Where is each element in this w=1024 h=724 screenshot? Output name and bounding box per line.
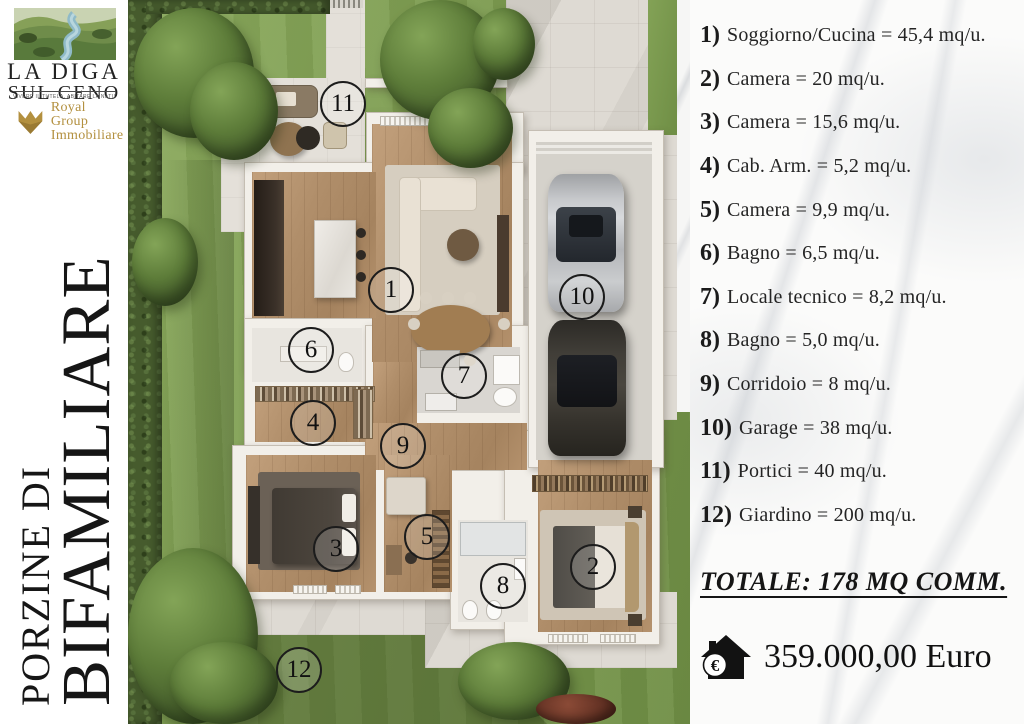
bedroom3-window-b bbox=[335, 585, 361, 594]
royal-group-gem-icon bbox=[16, 107, 45, 137]
area-list-item: 2)Camera = 20 mq/u. bbox=[700, 58, 1018, 102]
room-circle-5: 5 bbox=[404, 514, 450, 560]
bedroom2-headboard bbox=[625, 522, 639, 612]
area-list-item: 12)Giardino = 200 mq/u. bbox=[700, 494, 1018, 538]
kitchen-cabinets bbox=[254, 180, 284, 316]
tv-unit bbox=[497, 215, 509, 312]
area-item-number: 11) bbox=[700, 458, 731, 485]
bath8-shower bbox=[460, 522, 526, 556]
area-item-number: 7) bbox=[700, 284, 720, 311]
area-item-number: 2) bbox=[700, 66, 720, 93]
room-circle-1: 1 bbox=[368, 267, 414, 313]
landscape-logo-art bbox=[14, 8, 116, 60]
area-item-text: Camera = 15,6 mq/u. bbox=[727, 111, 900, 134]
area-item-number: 1) bbox=[700, 22, 720, 49]
area-item-text: Portici = 40 mq/u. bbox=[738, 460, 887, 483]
info-panel: 1)Soggiorno/Cucina = 45,4 mq/u. 2)Camera… bbox=[690, 0, 1024, 724]
dark-car-glass bbox=[557, 355, 618, 407]
euro-symbol: € bbox=[711, 656, 720, 675]
bedroom3-window-a bbox=[293, 585, 327, 594]
room-circle-12: 12 bbox=[276, 647, 322, 693]
area-list-item: 11)Portici = 40 mq/u. bbox=[700, 450, 1018, 494]
brand-sidebar: LA DIGA SUL CENO VIVERE IL TUTELA, ABITA… bbox=[0, 0, 128, 724]
bush-top-center bbox=[428, 88, 513, 168]
room-circle-9-label: 9 bbox=[397, 432, 410, 460]
area-item-text: Corridoio = 8 mq/u. bbox=[727, 373, 891, 396]
total-area-line: TOTALE: 178 MQ COMM. bbox=[700, 567, 1018, 597]
area-item-text: Giardino = 200 mq/u. bbox=[739, 504, 917, 527]
room-circle-4-label: 4 bbox=[307, 409, 320, 437]
hallway-floor bbox=[373, 362, 417, 430]
dark-car bbox=[548, 320, 626, 456]
logo-tagline: VIVERE IL TUTELA, ABITARE LA NATURA bbox=[13, 91, 116, 100]
room-circle-8: 8 bbox=[480, 563, 526, 609]
closet4-shelving-side bbox=[353, 389, 373, 439]
entry-gate bbox=[328, 0, 363, 8]
bedroom3-pillows bbox=[342, 494, 356, 522]
hills-river-illustration bbox=[14, 8, 116, 60]
area-item-number: 12) bbox=[700, 502, 732, 529]
bath8-toilet bbox=[462, 600, 478, 620]
room-circle-12-label: 12 bbox=[287, 656, 312, 684]
entry-walkway bbox=[326, 0, 365, 82]
room-circle-4: 4 bbox=[290, 400, 336, 446]
area-item-text: Locale tecnico = 8,2 mq/u. bbox=[727, 286, 947, 309]
garage-door bbox=[536, 142, 652, 154]
room-circle-11: 11 bbox=[320, 81, 366, 127]
tecnico-appliance bbox=[493, 355, 520, 385]
room-circle-6-label: 6 bbox=[305, 336, 318, 364]
area-item-number: 8) bbox=[700, 327, 720, 354]
floor-plan-render: 1 2 3 4 5 6 7 8 9 10 11 12 bbox=[128, 0, 690, 724]
bedroom2-bookshelf bbox=[532, 475, 648, 492]
portico-table-tray bbox=[296, 126, 320, 150]
area-item-number: 4) bbox=[700, 153, 720, 180]
tree-over-driveway bbox=[473, 8, 535, 80]
kitchen-island bbox=[314, 220, 356, 298]
area-item-text: Bagno = 5,0 mq/u. bbox=[727, 329, 880, 352]
island-stool bbox=[356, 228, 366, 238]
marble-edge bbox=[677, 0, 690, 412]
flyer-page: LA DIGA SUL CENO VIVERE IL TUTELA, ABITA… bbox=[0, 0, 1024, 724]
area-list-item: 10)Garage = 38 mq/u. bbox=[700, 406, 1018, 450]
room-circle-10: 10 bbox=[559, 274, 605, 320]
area-list-item: 4)Cab. Arm. = 5,2 mq/u. bbox=[700, 145, 1018, 189]
bedroom2-nightstand-b bbox=[628, 614, 642, 626]
room-circle-6: 6 bbox=[288, 327, 334, 373]
listing-vertical-title: PORZINE DI BIFAMILIARE bbox=[12, 212, 118, 706]
area-list-item: 3)Camera = 15,6 mq/u. bbox=[700, 101, 1018, 145]
bedroom2-window-b bbox=[600, 634, 636, 643]
bedroom3-wardrobe bbox=[248, 486, 260, 564]
dining-chair bbox=[420, 292, 432, 304]
area-item-number: 10) bbox=[700, 415, 732, 442]
area-list-item: 1)Soggiorno/Cucina = 45,4 mq/u. bbox=[700, 14, 1018, 58]
room-circle-9: 9 bbox=[380, 423, 426, 469]
room-circle-11-label: 11 bbox=[331, 90, 355, 118]
area-list-item: 6)Bagno = 6,5 mq/u. bbox=[700, 232, 1018, 276]
price-row: € 359.000,00 Euro bbox=[700, 633, 1018, 681]
area-item-text: Soggiorno/Cucina = 45,4 mq/u. bbox=[727, 24, 986, 47]
bedroom2-nightstand-a bbox=[628, 506, 642, 518]
bedroom5-desk bbox=[386, 545, 402, 575]
area-item-text: Garage = 38 mq/u. bbox=[739, 417, 893, 440]
agency-name-line1: Royal Group bbox=[51, 101, 124, 129]
area-item-number: 6) bbox=[700, 240, 720, 267]
portico-sofa-cushion bbox=[276, 92, 296, 106]
area-list-item: 5)Camera = 9,9 mq/u. bbox=[700, 188, 1018, 232]
bedroom2-window-a bbox=[548, 634, 588, 643]
room-circle-3: 3 bbox=[313, 526, 359, 572]
silver-car-sunroof bbox=[569, 215, 602, 237]
vertical-title-line2: BIFAMILIARE bbox=[55, 212, 118, 706]
tree-left-middle bbox=[132, 218, 198, 306]
area-list-item: 9)Corridoio = 8 mq/u. bbox=[700, 363, 1018, 407]
area-list-item: 7)Locale tecnico = 8,2 mq/u. bbox=[700, 276, 1018, 320]
dining-table bbox=[411, 305, 490, 355]
room-circle-7: 7 bbox=[441, 353, 487, 399]
area-item-number: 9) bbox=[700, 371, 720, 398]
room-area-list: 1)Soggiorno/Cucina = 45,4 mq/u. 2)Camera… bbox=[700, 0, 1018, 537]
price-text: 359.000,00 Euro bbox=[764, 638, 992, 676]
agency-name: Royal Group Immobiliare bbox=[51, 101, 124, 143]
tree-top-left-b bbox=[190, 62, 278, 160]
red-bush-bottom bbox=[536, 694, 616, 724]
tree-bottom-left-b bbox=[170, 642, 278, 724]
room-circle-3-label: 3 bbox=[330, 535, 343, 563]
logo-title-line1: LA DIGA bbox=[0, 60, 128, 83]
area-item-text: Cab. Arm. = 5,2 mq/u. bbox=[727, 155, 911, 178]
area-item-text: Camera = 20 mq/u. bbox=[727, 68, 885, 91]
area-item-text: Camera = 9,9 mq/u. bbox=[727, 199, 890, 222]
area-item-number: 5) bbox=[700, 197, 720, 224]
agency-name-line2: Immobiliare bbox=[51, 129, 124, 143]
room-circle-1-label: 1 bbox=[385, 276, 398, 304]
room-circle-5-label: 5 bbox=[421, 523, 434, 551]
area-item-number: 3) bbox=[700, 109, 720, 136]
coffee-table bbox=[447, 229, 479, 261]
area-list-item: 8)Bagno = 5,0 mq/u. bbox=[700, 319, 1018, 363]
room-circle-8-label: 8 bbox=[497, 572, 510, 600]
room-circle-7-label: 7 bbox=[458, 362, 471, 390]
front-lawn-strip bbox=[648, 0, 677, 135]
agency-logo: Royal Group Immobiliare bbox=[16, 101, 124, 143]
bedroom5-bed bbox=[386, 477, 426, 515]
area-item-text: Bagno = 6,5 mq/u. bbox=[727, 242, 880, 265]
room-circle-2-label: 2 bbox=[587, 553, 600, 581]
room-circle-2: 2 bbox=[570, 544, 616, 590]
bath6-toilet bbox=[338, 352, 354, 372]
house-euro-icon: € bbox=[700, 633, 752, 681]
room-circle-10-label: 10 bbox=[570, 283, 595, 311]
tecnico-toilet bbox=[493, 387, 517, 407]
